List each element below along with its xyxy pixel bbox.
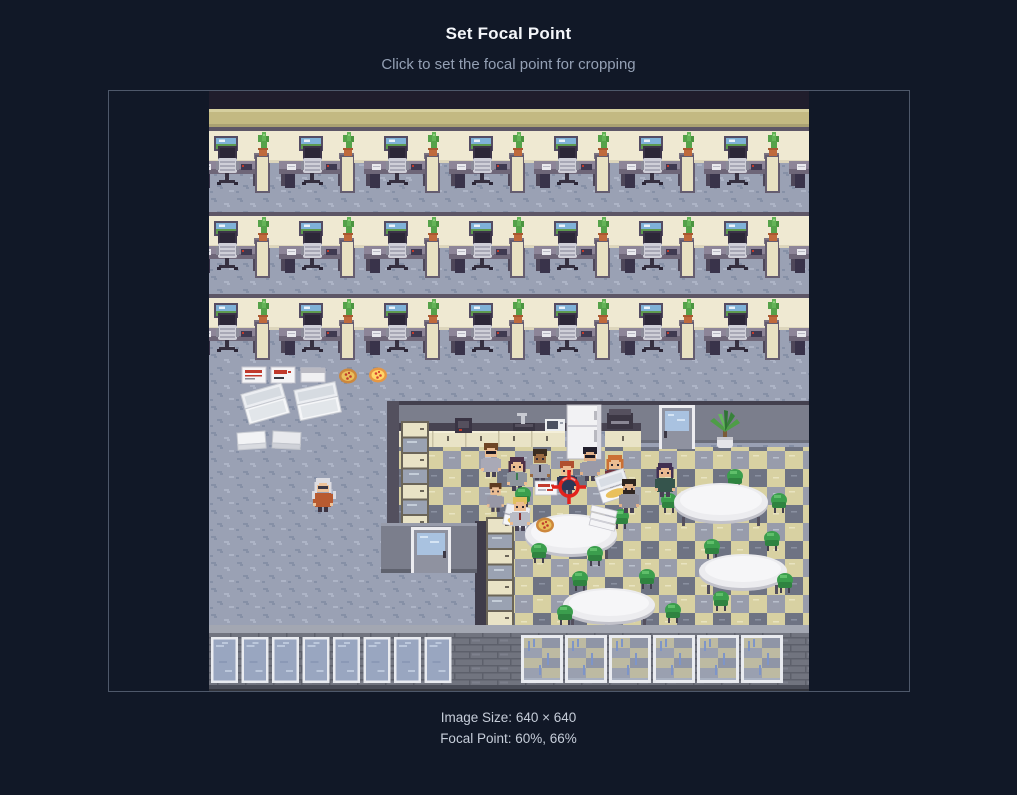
- image-size-value: 640 × 640: [516, 710, 576, 725]
- cropper-frame: [108, 90, 910, 692]
- focal-image-click-area[interactable]: [209, 91, 809, 691]
- focal-point-value: 60%, 66%: [515, 731, 577, 746]
- focal-point-dialog: Set Focal Point Click to set the focal p…: [0, 0, 1017, 795]
- image-info: Image Size: 640 × 640 Focal Point: 60%, …: [0, 707, 1017, 749]
- image-size-label: Image Size:: [441, 710, 512, 725]
- office-map-art: [209, 91, 809, 691]
- dialog-subtitle: Click to set the focal point for croppin…: [0, 56, 1017, 73]
- focal-point-label: Focal Point:: [440, 731, 511, 746]
- image-size-info: Image Size: 640 × 640: [0, 707, 1017, 728]
- dialog-title: Set Focal Point: [0, 24, 1017, 44]
- focal-point-info: Focal Point: 60%, 66%: [0, 728, 1017, 749]
